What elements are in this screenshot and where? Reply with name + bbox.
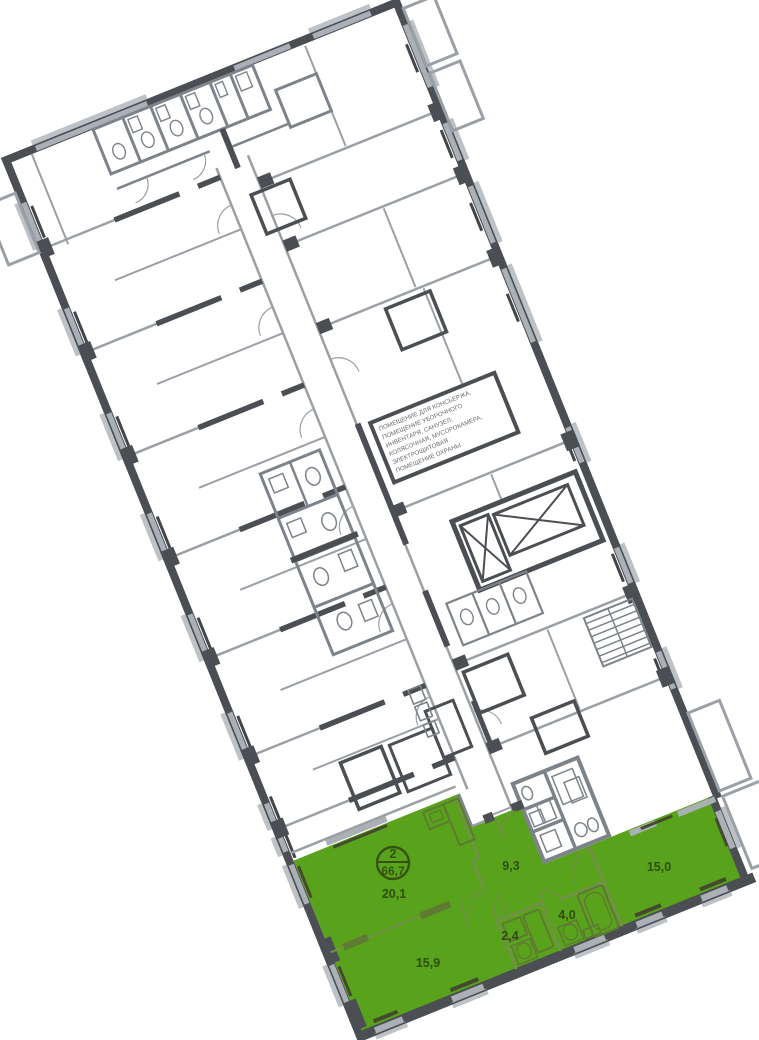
svg-text:4,0: 4,0: [558, 908, 575, 922]
svg-text:2: 2: [389, 846, 396, 861]
svg-text:20,1: 20,1: [382, 887, 406, 901]
svg-text:9,3: 9,3: [502, 859, 519, 873]
svg-text:2,4: 2,4: [501, 929, 518, 943]
svg-text:15,0: 15,0: [647, 860, 671, 874]
svg-text:66,7: 66,7: [381, 864, 405, 878]
svg-text:15,9: 15,9: [416, 956, 440, 970]
